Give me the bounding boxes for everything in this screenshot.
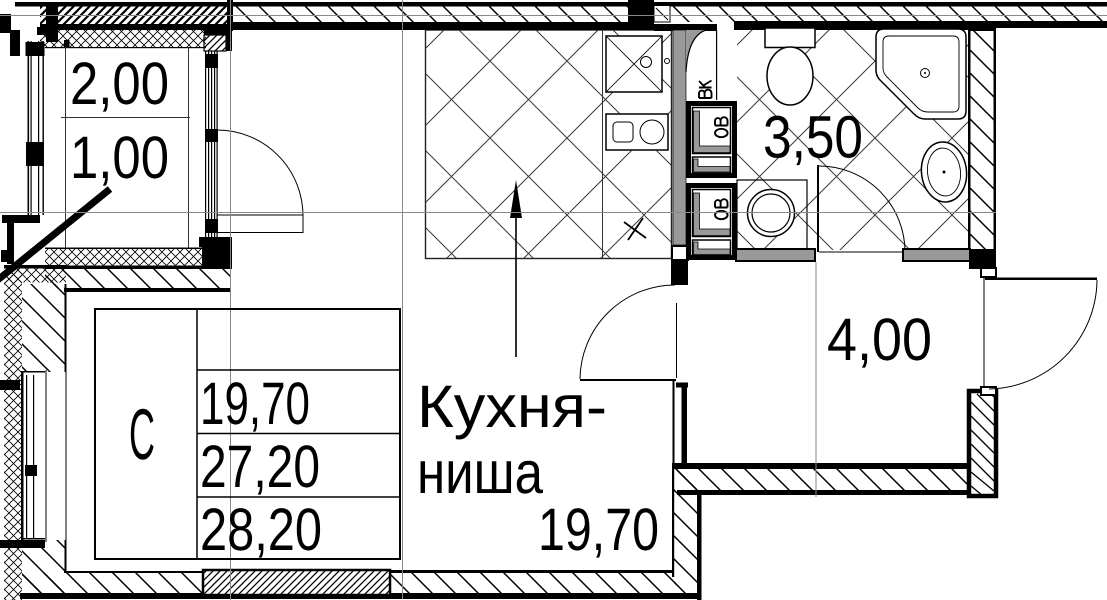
svg-text:Кухня-: Кухня- bbox=[417, 373, 607, 440]
svg-text:28,20: 28,20 bbox=[200, 496, 322, 563]
svg-text:4,00: 4,00 bbox=[827, 306, 932, 373]
svg-text:19,70: 19,70 bbox=[200, 370, 310, 437]
svg-text:3,50: 3,50 bbox=[763, 104, 863, 171]
svg-text:2,00: 2,00 bbox=[70, 50, 169, 117]
svg-text:27,20: 27,20 bbox=[200, 433, 320, 500]
svg-text:1,00: 1,00 bbox=[70, 124, 169, 191]
svg-text:С: С bbox=[129, 395, 155, 475]
svg-text:ниша: ниша bbox=[417, 439, 544, 506]
svg-text:19,70: 19,70 bbox=[538, 496, 659, 563]
